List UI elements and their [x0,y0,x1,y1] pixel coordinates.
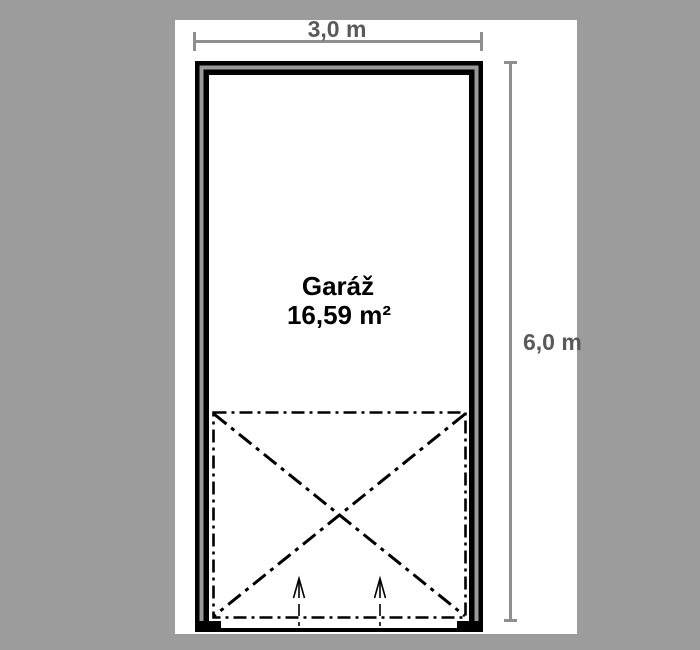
room-name-label: Garáž [302,271,374,301]
width-dimension-label: 3,0 m [308,16,367,42]
garage-walls [195,61,483,632]
floor-plan-viewport: 3,0 m 6,0 m Garáž 16,59 m² [0,0,700,650]
wall-end-cap-right [457,621,483,632]
room-area-label: 16,59 m² [287,300,391,330]
wall-end-cap-left [195,621,221,632]
room-interior [209,75,469,628]
height-dimension-label: 6,0 m [523,329,582,355]
floor-plan-canvas: 3,0 m 6,0 m Garáž 16,59 m² [0,0,700,650]
